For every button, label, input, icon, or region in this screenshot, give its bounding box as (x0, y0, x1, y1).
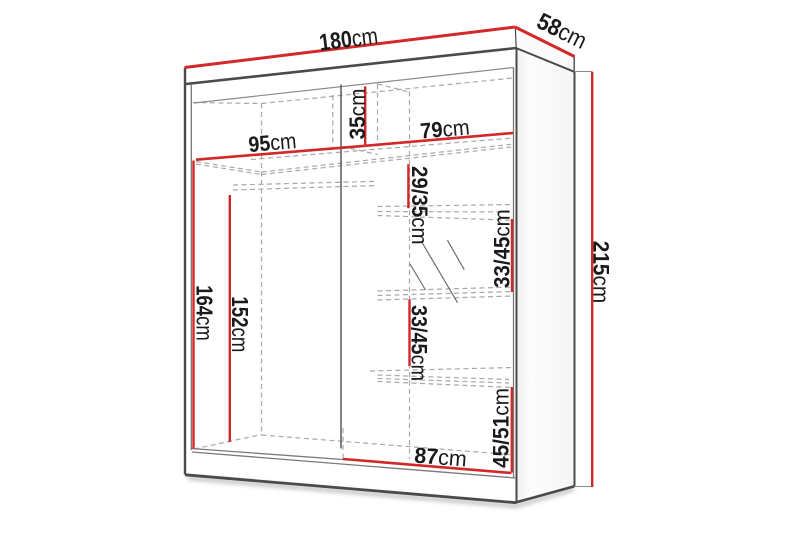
svg-text:95cm: 95cm (247, 128, 297, 157)
svg-text:33/45cm: 33/45cm (490, 209, 515, 288)
svg-text:79cm: 79cm (419, 114, 470, 143)
svg-text:45/51cm: 45/51cm (489, 388, 514, 468)
svg-text:180cm: 180cm (318, 23, 380, 56)
svg-text:35cm: 35cm (345, 89, 370, 140)
svg-text:87cm: 87cm (413, 443, 467, 472)
svg-text:29/35cm: 29/35cm (407, 166, 432, 245)
svg-text:164cm: 164cm (191, 285, 217, 341)
svg-text:152cm: 152cm (227, 296, 253, 352)
svg-text:215cm: 215cm (589, 241, 614, 304)
svg-text:33/45cm: 33/45cm (407, 305, 432, 381)
